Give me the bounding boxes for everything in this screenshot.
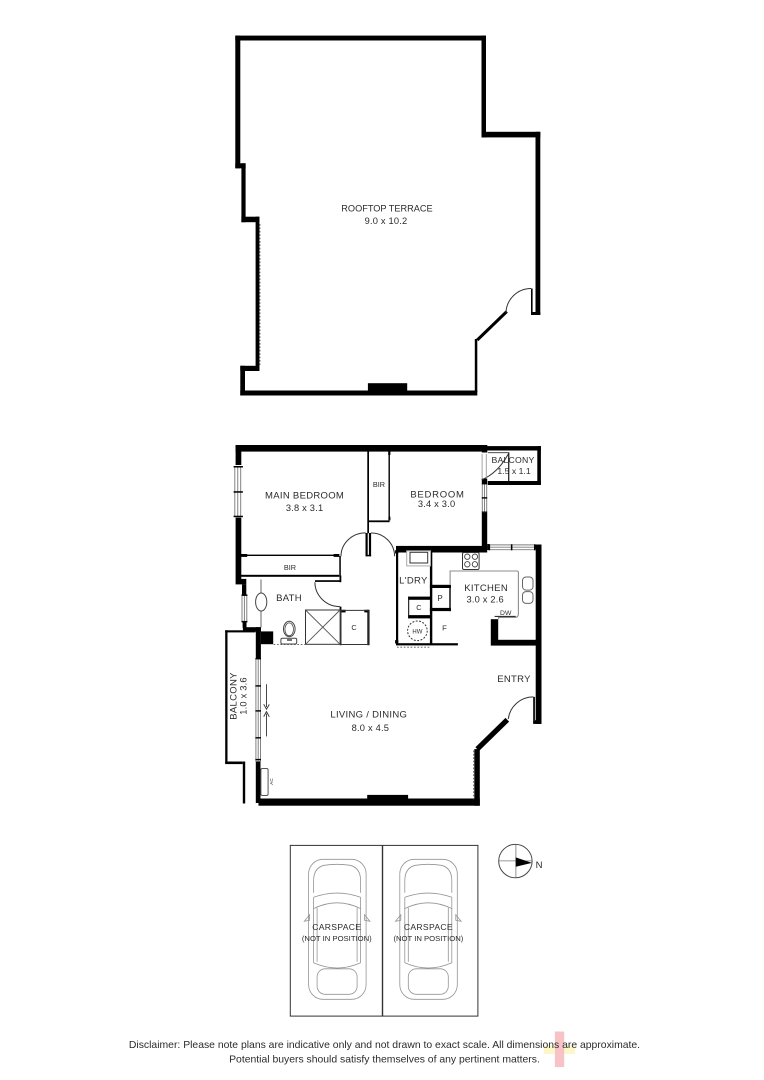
svg-text:CARSPACE: CARSPACE [312, 922, 361, 932]
svg-text:ROOFTOP TERRACE: ROOFTOP TERRACE [341, 204, 432, 214]
svg-text:BIR: BIR [373, 480, 385, 489]
svg-text:9.0 x 10.2: 9.0 x 10.2 [365, 216, 408, 226]
svg-text:DW: DW [500, 610, 512, 617]
svg-text:ENTRY: ENTRY [497, 674, 531, 685]
svg-text:3.0 x 2.6: 3.0 x 2.6 [466, 595, 503, 605]
svg-text:F: F [442, 624, 447, 633]
svg-text:1.0 x 3.6: 1.0 x 3.6 [239, 677, 249, 714]
svg-text:P: P [437, 594, 442, 603]
svg-text:LIVING / DINING: LIVING / DINING [330, 710, 407, 721]
svg-text:1.5 x 1.1: 1.5 x 1.1 [497, 466, 530, 476]
svg-text:Potential buyers should satisf: Potential buyers should satisfy themselv… [229, 1054, 540, 1065]
svg-text:(NOT IN POSITION): (NOT IN POSITION) [393, 934, 463, 943]
svg-text:(NOT IN POSITION): (NOT IN POSITION) [302, 934, 372, 943]
svg-text:KITCHEN: KITCHEN [464, 583, 508, 594]
svg-text:BIR: BIR [284, 563, 296, 572]
svg-text:3.8 x 3.1: 3.8 x 3.1 [286, 503, 323, 513]
svg-text:3.4 x 3.0: 3.4 x 3.0 [418, 499, 455, 509]
svg-text:Disclaimer: Please note plans: Disclaimer: Please note plans are indica… [129, 1040, 640, 1051]
svg-text:C: C [416, 603, 421, 612]
svg-text:MAIN BEDROOM: MAIN BEDROOM [265, 491, 344, 502]
svg-text:HW: HW [412, 629, 422, 635]
svg-text:BALCONY: BALCONY [492, 455, 535, 465]
svg-text:N: N [536, 860, 543, 871]
svg-text:C: C [351, 623, 356, 632]
svg-text:AC: AC [269, 778, 274, 785]
svg-text:8.0 x 4.5: 8.0 x 4.5 [352, 723, 389, 733]
svg-text:CARSPACE: CARSPACE [404, 922, 453, 932]
svg-text:BATH: BATH [276, 593, 302, 604]
svg-text:L'DRY: L'DRY [399, 575, 428, 586]
